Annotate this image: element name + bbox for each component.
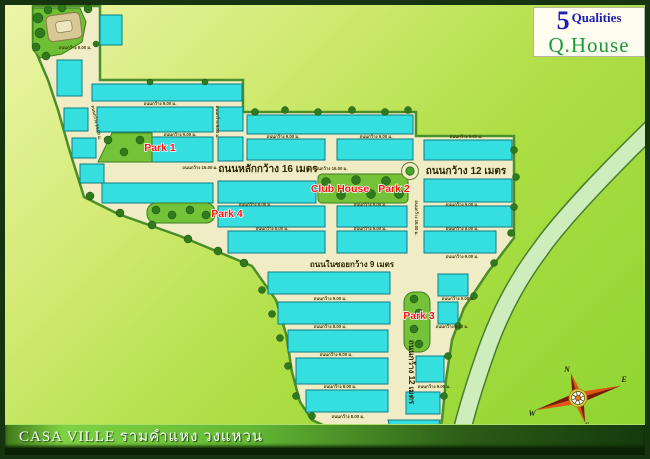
housing-block xyxy=(218,181,316,203)
road-width-label: ถนนกว้าง 9.00 ม. xyxy=(59,44,92,50)
roundabout xyxy=(402,163,419,180)
tree-icon xyxy=(508,230,515,237)
tree-icon xyxy=(513,174,520,181)
tree-icon xyxy=(277,335,284,342)
logo-top-row: 5 Qualities xyxy=(557,8,622,34)
housing-block xyxy=(228,231,325,253)
housing-block xyxy=(424,179,512,202)
park-2-label: Park 2 xyxy=(378,183,410,195)
south-road-label: ถนนกว้าง 12 เมตร xyxy=(407,340,417,405)
road-width-label: ถนนกว้าง 8.00 ม. xyxy=(256,225,289,231)
housing-block xyxy=(218,107,243,131)
tree-icon xyxy=(202,211,210,219)
compass-w-label: W xyxy=(528,409,536,418)
tree-icon xyxy=(120,148,128,156)
housing-block xyxy=(337,231,407,253)
compass-e-label: E xyxy=(620,375,626,384)
tree-icon xyxy=(93,41,99,47)
tree-icon xyxy=(44,6,52,14)
road-width-label: ถนนกว้าง 16.00 ม. xyxy=(414,200,420,235)
tree-icon xyxy=(42,52,50,60)
tree-icon xyxy=(445,353,452,360)
housing-block xyxy=(288,330,388,352)
tree-icon xyxy=(147,79,153,85)
road-width-label: ถนนกว้าง 9.00 ม. xyxy=(267,133,300,139)
main-road-label: ถนนหลักกว้าง 16 เมตร xyxy=(218,163,318,175)
road-width-label: ถนนกว้าง 9.00 ม. xyxy=(215,106,221,139)
soi-road-label: ถนนในซอยกว้าง 9 เมตร xyxy=(310,259,395,269)
housing-block xyxy=(102,183,213,203)
tree-icon xyxy=(282,107,289,114)
tree-icon xyxy=(269,311,276,318)
title-bar-base xyxy=(5,448,645,455)
road-width-label: ถนนกว้าง 9.00 ม. xyxy=(442,295,475,301)
site-plan-map: ถนนหลักกว้าง 16 เมตร ถนนกว้าง 12 เมตร ถน… xyxy=(0,0,650,459)
east-road-label: ถนนกว้าง 12 เมตร xyxy=(426,165,507,177)
roundabout-island xyxy=(406,167,414,175)
tree-icon xyxy=(382,109,389,116)
tree-icon xyxy=(84,5,92,13)
housing-block xyxy=(424,231,496,253)
tree-icon xyxy=(405,107,412,114)
logo-brand-name: Q.House xyxy=(548,35,629,56)
road-width-label: ถนนกว้าง 9.00 ม. xyxy=(450,133,483,139)
housing-block xyxy=(57,60,82,96)
road-width-label: ถนนกว้าง 9.00 ม. xyxy=(314,295,347,301)
housing-block xyxy=(97,107,213,132)
tree-icon xyxy=(410,325,418,333)
road-width-label: ถนนกว้าง 8.00 ม. xyxy=(446,225,479,231)
housing-block xyxy=(268,272,390,294)
project-title-bar: CASA VILLE รามคำแหง วงแหวน xyxy=(5,424,645,448)
road-width-label: ถนนกว้าง 9.00 ม. xyxy=(320,351,353,357)
park-4-label: Park 4 xyxy=(211,208,243,220)
housing-block xyxy=(64,108,88,131)
tree-icon xyxy=(116,209,124,217)
tree-icon xyxy=(148,221,156,229)
road-width-label: ถนนกว้าง 9.00 ม. xyxy=(418,383,451,389)
tree-icon xyxy=(293,393,300,400)
road-width-label: ถนนกว้าง 9.00 ม. xyxy=(360,133,393,139)
tree-icon xyxy=(32,43,40,51)
housing-block xyxy=(247,115,413,134)
housing-block xyxy=(247,139,325,160)
housing-block xyxy=(92,84,242,101)
tree-icon xyxy=(186,206,194,214)
road-width-label: ถนนกว้าง 9.00 ม. xyxy=(446,201,479,207)
road-width-label: ถนนกว้าง 9.00 ม. xyxy=(164,131,197,137)
tree-icon xyxy=(58,4,66,12)
tree-icon xyxy=(259,287,266,294)
housing-block xyxy=(72,138,96,158)
tree-icon xyxy=(136,136,144,144)
road-width-label: ถนนกว้าง 8.00 ม. xyxy=(239,201,272,207)
tree-icon xyxy=(511,147,518,154)
housing-block xyxy=(416,356,444,382)
tree-icon xyxy=(33,13,43,23)
road-width-label: ถนนกว้าง 9.00 ม. xyxy=(436,323,469,329)
tree-icon xyxy=(152,206,160,214)
tree-icon xyxy=(410,295,418,303)
tree-icon xyxy=(104,136,112,144)
road-width-label: ถนนกว้าง 16.00 ม. xyxy=(312,165,347,171)
tree-icon xyxy=(86,192,94,200)
tree-icon xyxy=(168,211,176,219)
housing-block xyxy=(438,274,468,296)
tree-icon xyxy=(252,109,259,116)
housing-block xyxy=(218,137,243,161)
park-1-label: Park 1 xyxy=(144,142,176,154)
housing-block xyxy=(80,164,104,183)
developer-logo: 5 Qualities Q.House xyxy=(533,7,645,57)
logo-qualities-text: Qualities xyxy=(572,11,622,24)
tree-icon xyxy=(441,393,448,400)
tree-icon xyxy=(315,109,322,116)
housing-block xyxy=(438,302,458,324)
road-width-label: ถนนกว้าง 8.00 ม. xyxy=(332,413,365,419)
tree-icon xyxy=(240,259,248,267)
road-width-label: ถนนกว้าง 9.00 ม. xyxy=(354,201,387,207)
housing-block xyxy=(100,15,122,45)
housing-block xyxy=(337,139,413,160)
road-width-label: ถนนกว้าง 8.00 ม. xyxy=(324,383,357,389)
road-width-label: ถนนกว้าง 9.00 ม. xyxy=(354,225,387,231)
housing-block xyxy=(306,390,388,412)
tree-icon xyxy=(214,247,222,255)
entrance-building-court xyxy=(55,20,72,33)
housing-block xyxy=(424,140,512,160)
tree-icon xyxy=(285,363,292,370)
road-width-label: ถนนกว้าง 8.00 ม. xyxy=(314,323,347,329)
tree-icon xyxy=(491,260,498,267)
logo-number: 5 xyxy=(557,8,570,34)
housing-block xyxy=(296,358,388,384)
tree-icon xyxy=(511,204,518,211)
housing-block xyxy=(278,302,390,324)
compass-n-label: N xyxy=(563,365,571,374)
road-width-label: ถนนกว้าง 9.00 ม. xyxy=(144,100,177,106)
park-3-label: Park 3 xyxy=(403,310,435,322)
tree-icon xyxy=(184,235,192,243)
tree-icon xyxy=(309,413,316,420)
road-width-label: ถนนกว้าง 9.00 ม. xyxy=(446,253,479,259)
tree-icon xyxy=(202,79,208,85)
housing-block xyxy=(424,206,512,227)
project-title: CASA VILLE รามคำแหง วงแหวน xyxy=(5,424,263,448)
tree-icon xyxy=(349,107,356,114)
housing-block xyxy=(337,206,407,227)
club-house-label: Club House xyxy=(311,183,369,195)
road-width-label: ถนนกว้าง 16.00 ม. xyxy=(182,164,217,170)
tree-icon xyxy=(35,28,45,38)
